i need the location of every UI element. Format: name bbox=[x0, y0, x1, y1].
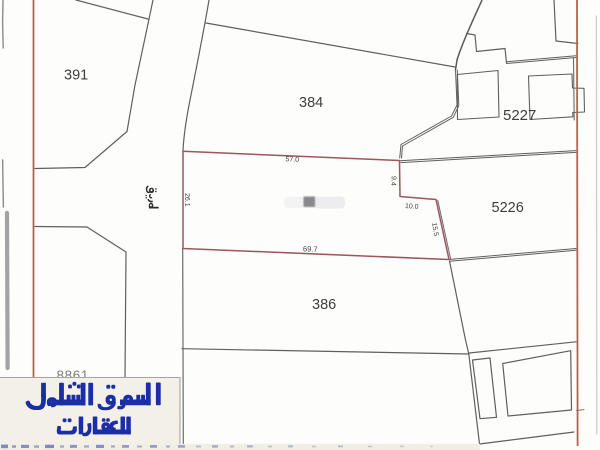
svg-text:5226: 5226 bbox=[492, 200, 524, 216]
svg-text:5227: 5227 bbox=[503, 107, 536, 124]
svg-text:384: 384 bbox=[299, 95, 323, 111]
svg-text:57.0: 57.0 bbox=[285, 156, 299, 163]
svg-text:386: 386 bbox=[312, 297, 336, 313]
svg-text:391: 391 bbox=[64, 68, 88, 84]
svg-text:26.1: 26.1 bbox=[183, 193, 190, 207]
svg-text:10.0: 10.0 bbox=[405, 203, 419, 211]
svg-text:69.7: 69.7 bbox=[303, 244, 318, 254]
svg-text:9.4: 9.4 bbox=[389, 176, 397, 186]
